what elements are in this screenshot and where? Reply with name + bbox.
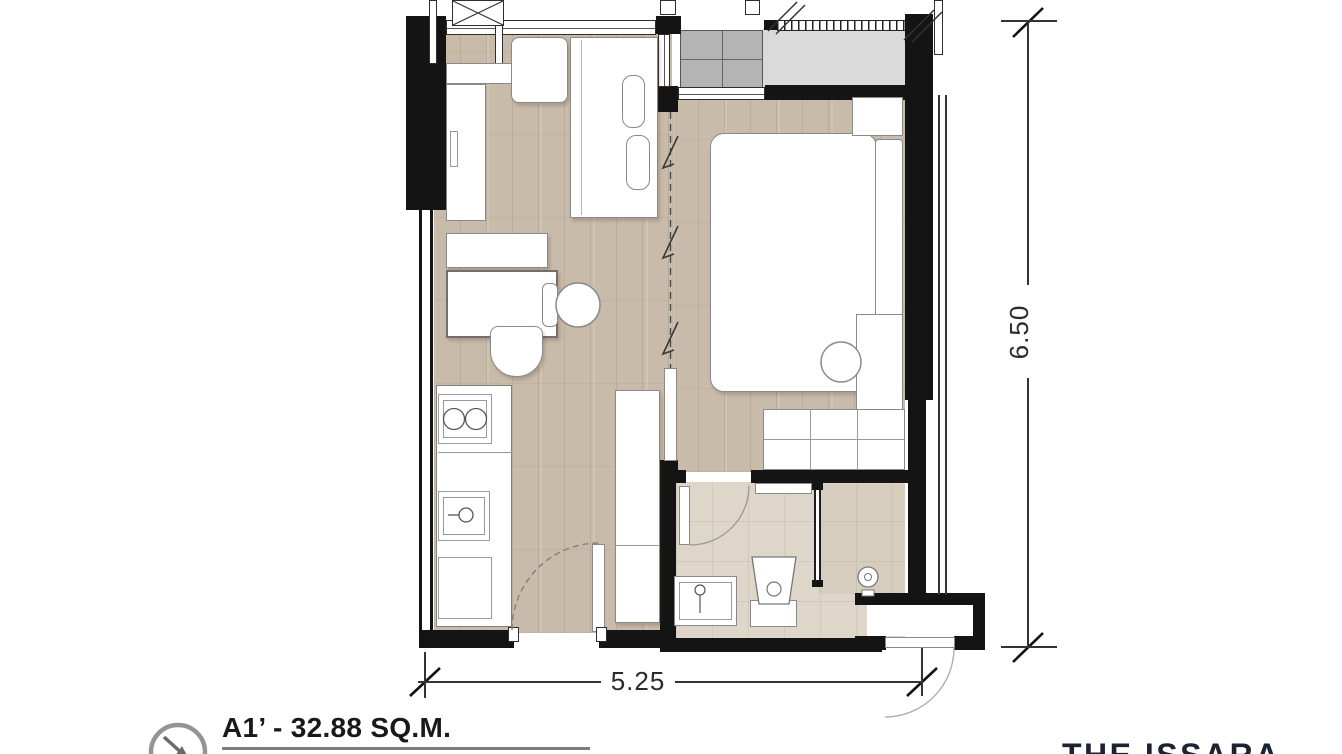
dimension-height-label: 6.50: [1004, 302, 1056, 362]
kitchen-sink-basin: [443, 497, 485, 535]
wall-right-upper: [905, 14, 933, 400]
dim-width-line-a: [418, 681, 601, 683]
wall-left-column: [406, 16, 446, 210]
compass-circle: [151, 725, 205, 754]
niche-door-leaf: [885, 637, 955, 648]
brand-wordmark: THE ISSARA: [1062, 737, 1281, 754]
stove-top: [443, 400, 487, 438]
base-cabinet: [438, 557, 492, 619]
wall-bottom-left: [419, 630, 514, 648]
wardrobe: [763, 409, 905, 470]
exterior-line-b: [945, 95, 947, 595]
dim-height-line-a: [1027, 21, 1029, 285]
cabinet-divider: [616, 545, 659, 546]
shower-partition-cap-bottom: [812, 580, 823, 587]
console-detail: [450, 131, 458, 167]
door-jamb-right: [596, 627, 607, 642]
desk-cushion-2: [626, 135, 650, 190]
bathroom-basin: [679, 582, 732, 620]
shower-partition-cap-top: [812, 483, 823, 490]
wall-left-outer-line: [419, 210, 422, 648]
ac-ledge: [680, 30, 763, 88]
nightstand-top: [852, 97, 903, 136]
desk-cushion-1: [622, 75, 645, 128]
upper-column-c: [934, 0, 943, 55]
dim-width-line-b: [675, 681, 922, 683]
dim-width-ext-right: [921, 648, 923, 696]
unit-title: A1’ - 32.88 SQ.M.: [222, 712, 451, 744]
entrance-door-leaf: [592, 544, 605, 632]
console-cabinet: [446, 84, 486, 221]
bed: [710, 133, 877, 392]
niche-interior: [867, 605, 973, 636]
dim-height-stub-top: [1001, 20, 1057, 22]
chair-backrest: [542, 283, 558, 327]
floorplan-canvas: 5.25 6.50 A1’ - 32.88 SQ.M. THE ISSARA: [0, 0, 1342, 754]
compass-arrow-head: [175, 746, 189, 754]
tall-cabinet: [615, 390, 660, 623]
shower-floor: [818, 484, 905, 594]
title-underline: [222, 747, 590, 750]
dim-width-ext-left: [424, 652, 426, 698]
compass-arrow-icon: [164, 737, 184, 754]
dim-height-line-b: [1027, 378, 1029, 648]
tub-chair: [490, 326, 543, 377]
sliding-partition-panel: [664, 368, 677, 461]
counter-seam: [438, 452, 512, 453]
toilet-tank: [750, 600, 797, 627]
facade-line-left: [429, 0, 437, 64]
bathroom-shelf: [755, 483, 812, 494]
upper-column-a: [660, 0, 676, 15]
wall-shelf: [446, 63, 512, 84]
wall-bathroom-top-b: [751, 470, 913, 483]
wall-bathroom-top-a: [676, 470, 686, 483]
tv-desk-unit: [570, 37, 658, 218]
dimension-width-label: 5.25: [598, 666, 678, 697]
condenser-unit-box: [452, 0, 504, 26]
balcony-sliding-door: [678, 87, 765, 100]
exterior-line-a: [938, 95, 940, 595]
balcony-railing-grille: [777, 20, 905, 31]
wall-balcony-left-stub: [656, 16, 681, 34]
sofa: [511, 37, 568, 103]
wall-niche-bottom-left: [855, 636, 886, 650]
ac-unit-divider-h: [681, 59, 762, 60]
balcony-floor: [763, 28, 905, 90]
balcony-frame-left: [658, 34, 670, 87]
door-jamb-left: [508, 627, 519, 642]
dim-height-stub-bottom: [1001, 646, 1057, 648]
wall-balcony-mullion-cap: [764, 20, 777, 30]
wall-left-inner-line: [430, 210, 433, 648]
wall-bathroom-bottom: [660, 638, 882, 652]
wall-niche-bottom-right: [954, 636, 985, 650]
upper-column-b: [745, 0, 760, 15]
wall-partition-top-stub: [655, 86, 678, 112]
bathroom-door-leaf: [679, 486, 690, 545]
nightstand-bottom: [856, 314, 903, 413]
dining-bench: [446, 233, 548, 268]
shower-glass-partition: [814, 486, 821, 584]
desk-edge-line: [581, 40, 582, 215]
wall-right-lower: [908, 400, 926, 596]
